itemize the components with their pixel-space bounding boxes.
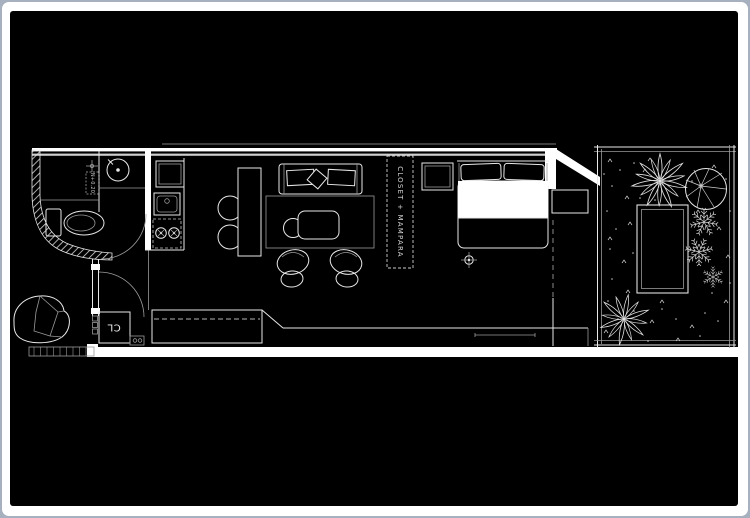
plant-icon <box>600 294 649 345</box>
floor-plan-drawing <box>0 0 750 518</box>
bed-icon <box>457 161 549 248</box>
nightstand-icon <box>422 163 453 190</box>
plant-icon <box>631 154 687 208</box>
ceiling-light-icon <box>461 252 477 268</box>
bathroom-door-arc <box>101 214 146 259</box>
outdoor-step <box>552 190 588 213</box>
toilet-icon <box>46 209 104 236</box>
terrace <box>594 145 736 348</box>
sink-icon <box>107 159 129 181</box>
entry-step <box>29 347 94 356</box>
entry-door-arc <box>99 272 144 317</box>
armchair-icon <box>327 246 364 288</box>
walls <box>32 144 738 357</box>
living-area <box>266 164 374 288</box>
terrace-border <box>594 145 736 348</box>
rock-icon <box>14 296 69 343</box>
dining-area <box>218 168 261 256</box>
floor-plan-screenshot: { "plan": { "labels": { "closet_mampara"… <box>0 0 750 518</box>
kitchen-sink-icon <box>154 193 180 215</box>
dining-table-icon <box>238 168 261 256</box>
coffee-table-icon <box>298 211 339 239</box>
sofa-icon <box>279 164 362 194</box>
shower-drain-icon <box>86 160 98 172</box>
cooktop-icon <box>153 219 181 248</box>
fern-icon <box>703 267 724 288</box>
hall-closet-icon <box>93 312 131 343</box>
open-door-panel <box>556 149 600 186</box>
planter-pool <box>637 205 688 293</box>
exterior <box>14 296 94 356</box>
closet <box>387 156 413 268</box>
tree-icon <box>686 169 727 210</box>
built-in-counter <box>152 310 588 346</box>
equipment-icon <box>130 336 144 345</box>
fern-icon <box>685 238 714 266</box>
bedroom <box>422 161 588 268</box>
armchair-icon <box>274 246 311 288</box>
curved-wall <box>32 150 112 260</box>
fridge-icon <box>156 161 184 187</box>
fern-icon <box>690 208 719 236</box>
level-label-box <box>86 172 99 194</box>
hallway <box>93 310 589 346</box>
